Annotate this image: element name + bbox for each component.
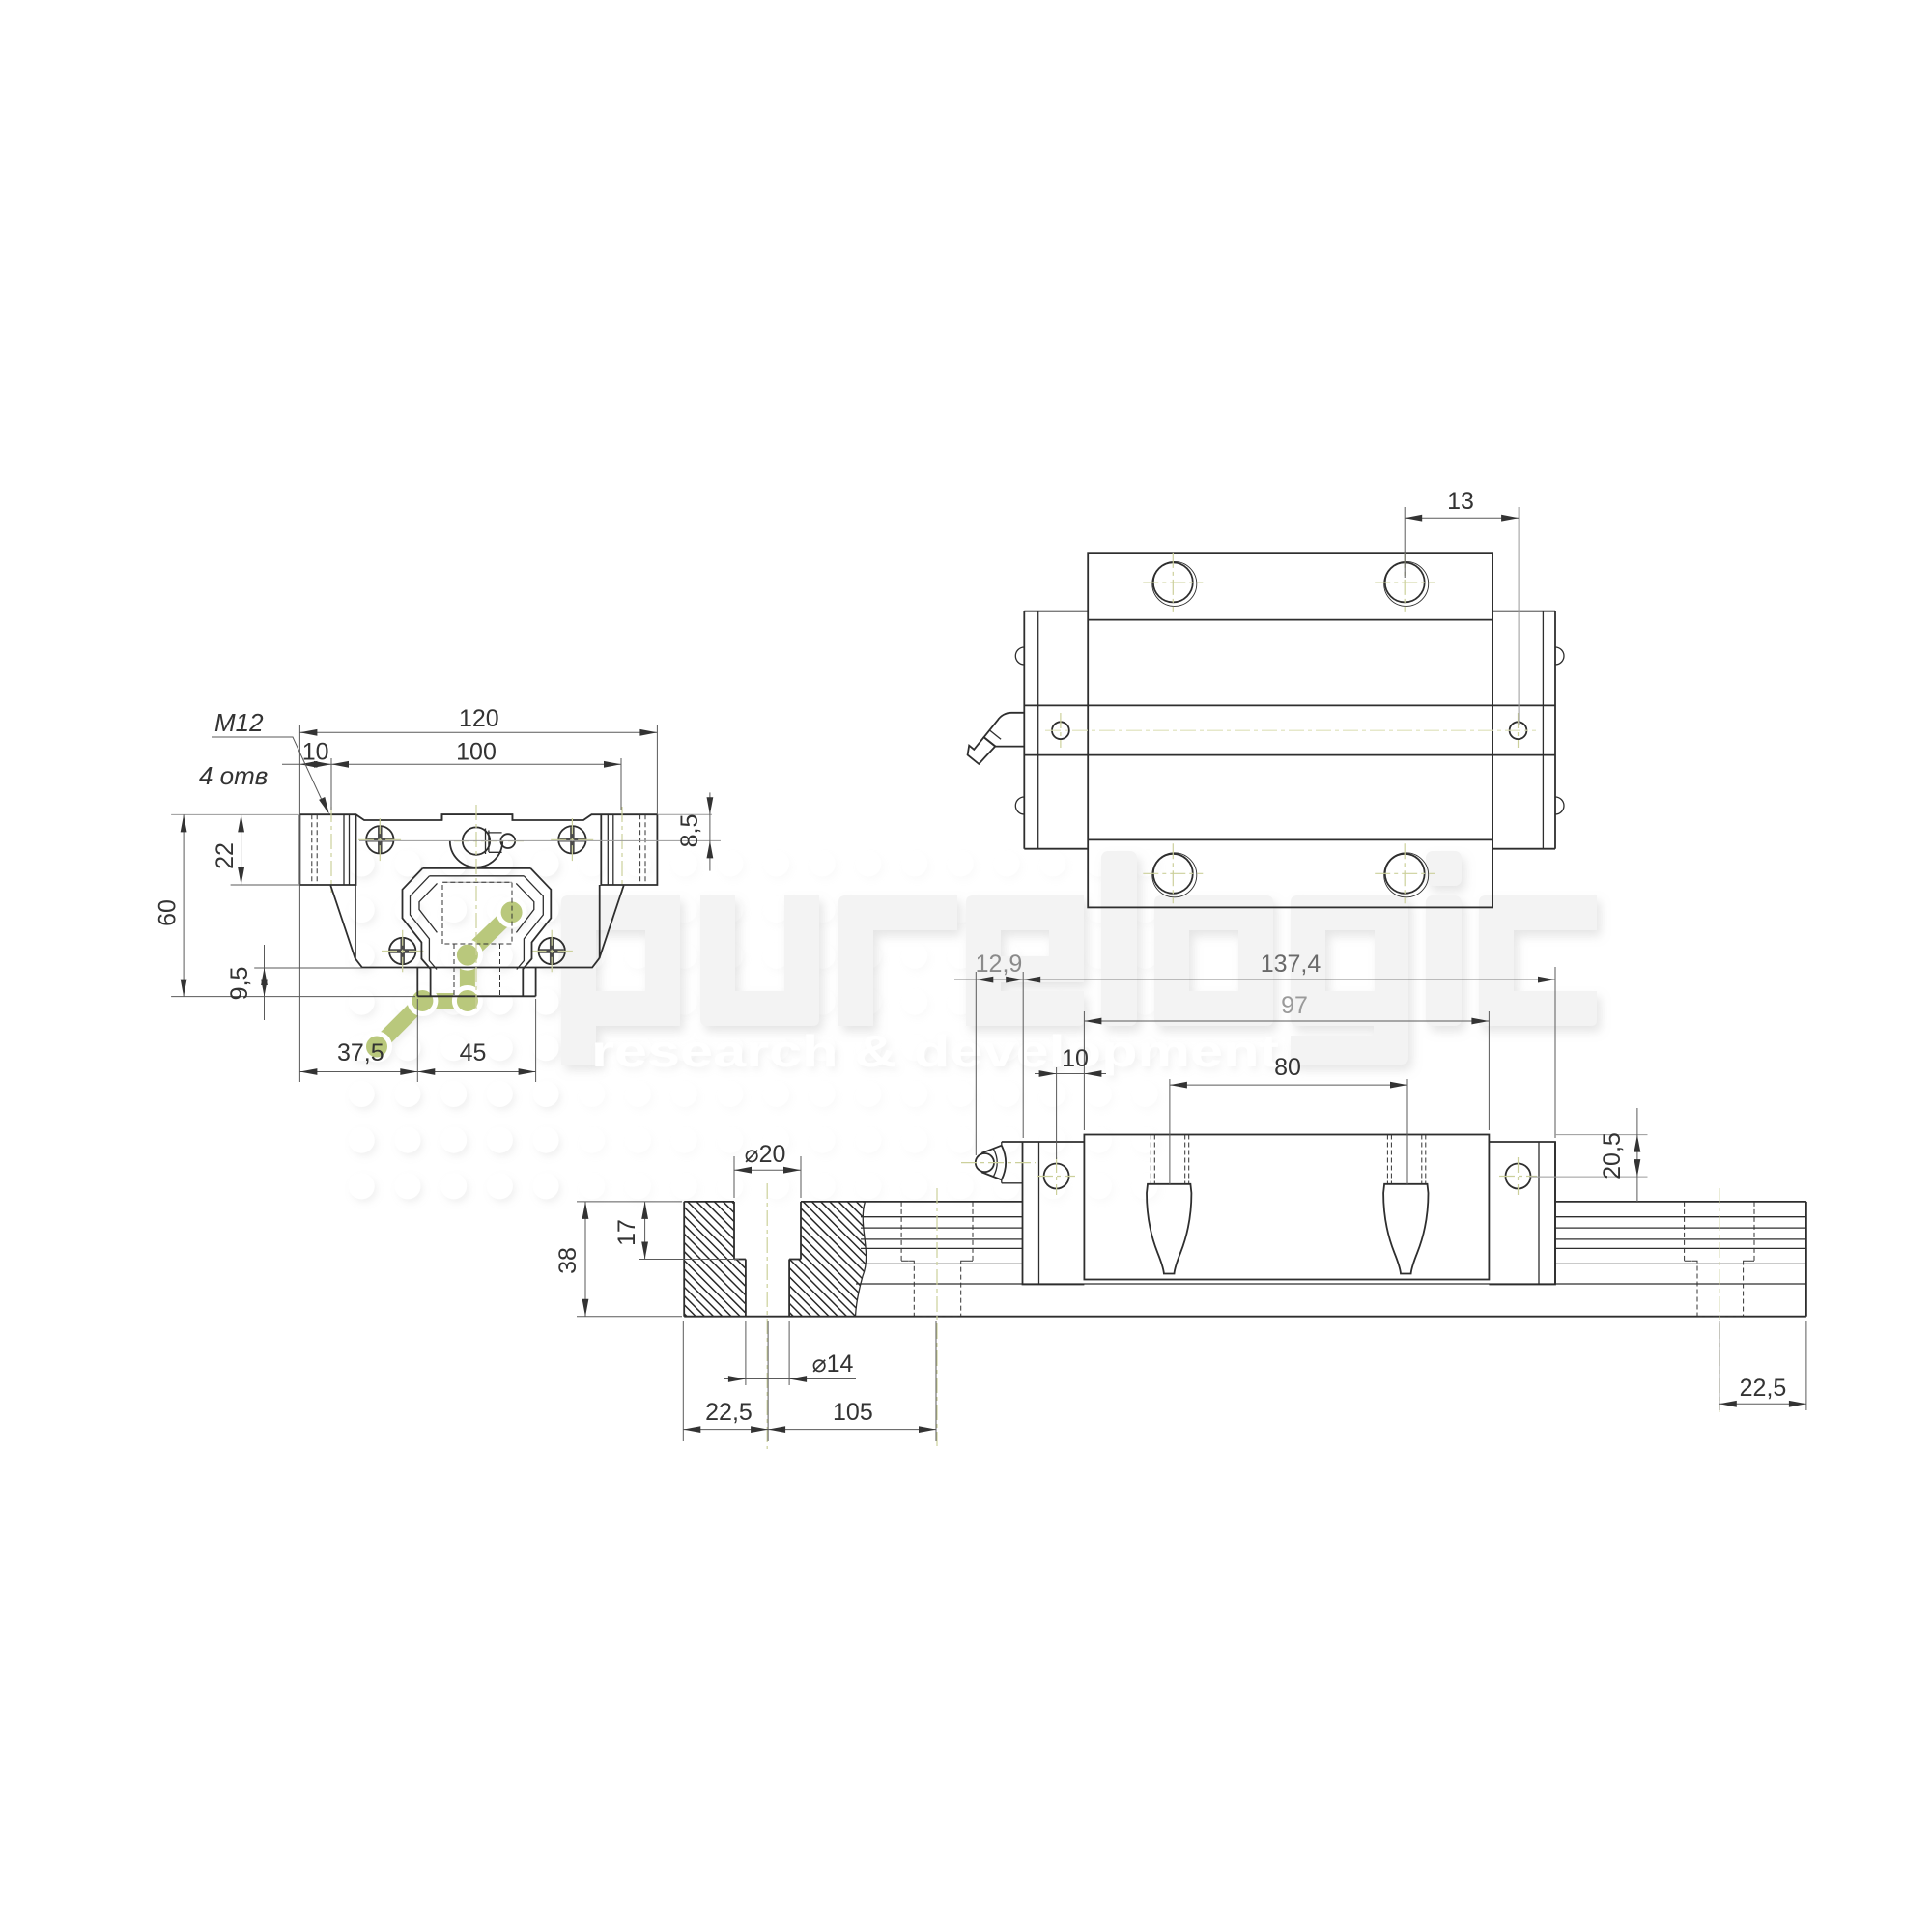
svg-text:М12: М12 <box>214 708 264 737</box>
svg-text:10: 10 <box>1062 1045 1089 1072</box>
svg-text:9,5: 9,5 <box>226 967 253 1001</box>
svg-text:22: 22 <box>212 842 239 869</box>
svg-text:60: 60 <box>155 899 182 926</box>
svg-text:97: 97 <box>1281 992 1308 1019</box>
svg-text:10: 10 <box>302 739 329 766</box>
svg-text:13: 13 <box>1447 488 1474 515</box>
svg-text:22,5: 22,5 <box>705 1399 753 1426</box>
svg-text:17: 17 <box>613 1219 640 1246</box>
svg-text:4 отв: 4 отв <box>199 761 268 790</box>
svg-text:105: 105 <box>833 1399 873 1426</box>
svg-text:20,5: 20,5 <box>1599 1132 1626 1179</box>
svg-text:80: 80 <box>1274 1054 1301 1081</box>
svg-text:12,9: 12,9 <box>976 951 1023 978</box>
svg-text:⌀20: ⌀20 <box>745 1141 786 1168</box>
svg-text:100: 100 <box>456 739 497 766</box>
svg-text:37,5: 37,5 <box>337 1039 384 1066</box>
svg-text:8,5: 8,5 <box>676 814 703 848</box>
svg-text:45: 45 <box>460 1039 487 1066</box>
svg-text:⌀14: ⌀14 <box>812 1350 854 1378</box>
svg-text:120: 120 <box>459 705 499 732</box>
svg-text:137,4: 137,4 <box>1261 951 1321 978</box>
svg-text:22,5: 22,5 <box>1740 1375 1787 1402</box>
svg-text:38: 38 <box>554 1247 582 1274</box>
svg-text:research & development: research & development <box>591 1026 1279 1076</box>
